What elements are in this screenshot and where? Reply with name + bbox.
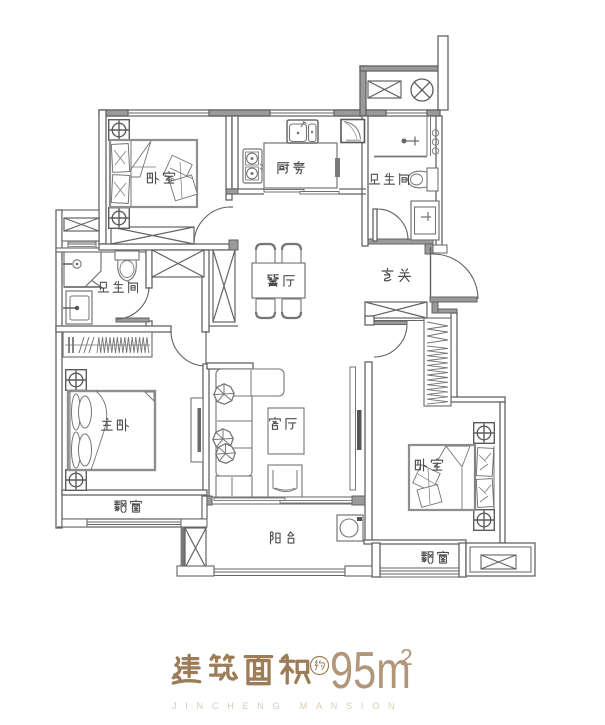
svg-text:95m: 95m bbox=[330, 641, 411, 700]
svg-text:2: 2 bbox=[400, 644, 413, 670]
svg-text:JINCHENG MANSION: JINCHENG MANSION bbox=[172, 701, 403, 711]
